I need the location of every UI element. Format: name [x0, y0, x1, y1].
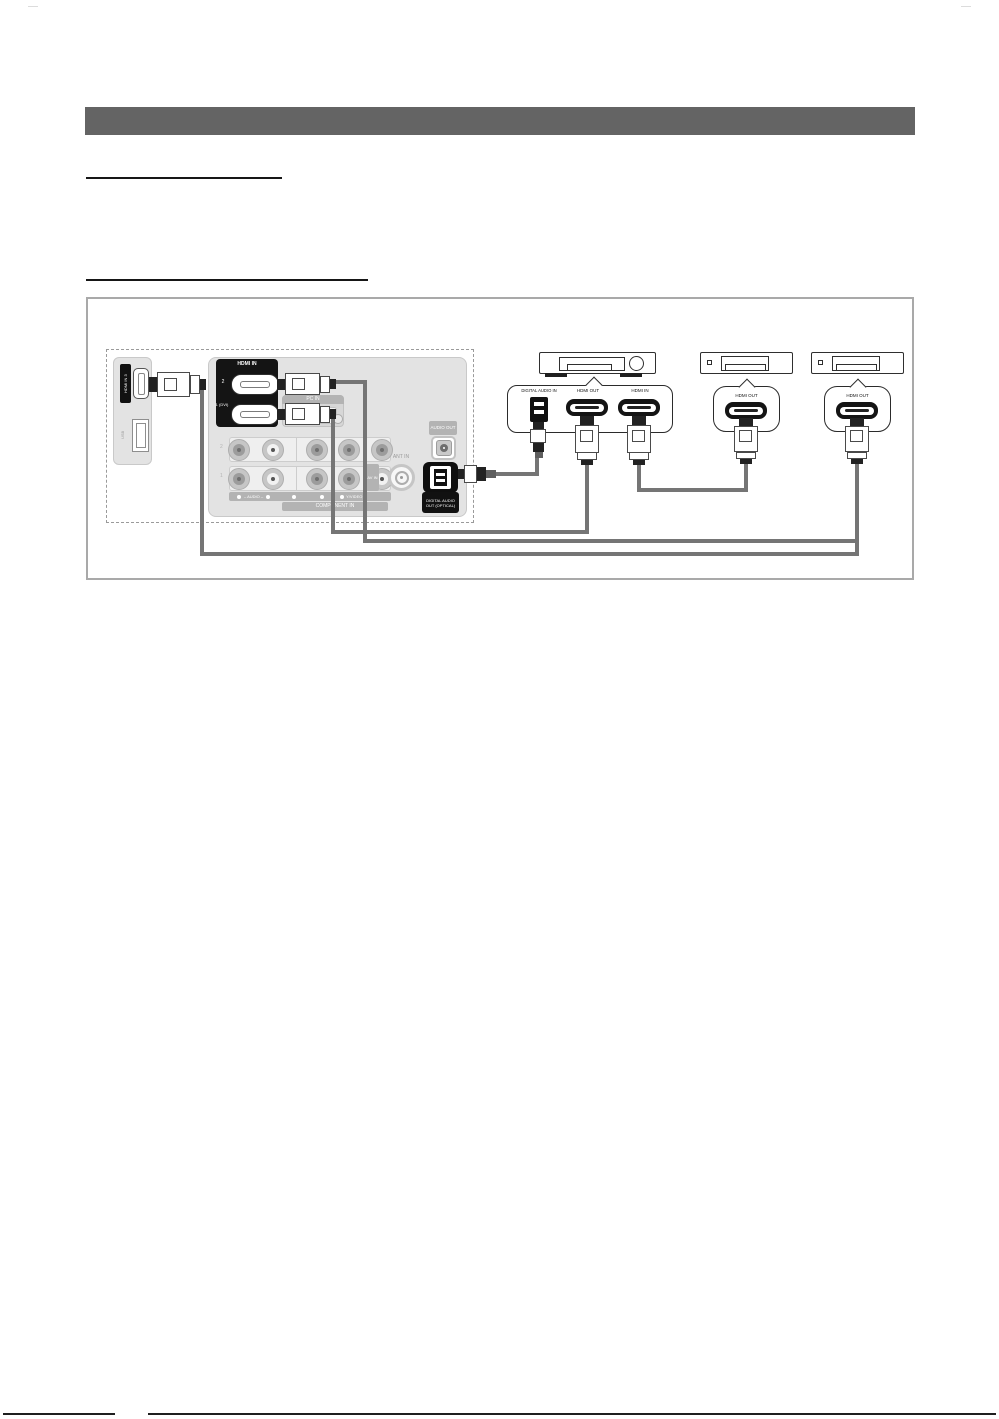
usb-port-label: USB — [117, 420, 128, 449]
pc-in-text: PC IN — [306, 396, 319, 402]
device3-connector-detail — [850, 430, 863, 442]
pb-icon — [292, 495, 296, 499]
optical-out-port — [423, 462, 458, 493]
hdmi-port-1-dvi — [231, 404, 279, 425]
hdmi3-connector-cap — [200, 379, 206, 390]
hdmi2-cable-vertical — [363, 380, 367, 543]
audio-out-label: AUDIO OUT — [429, 421, 457, 435]
rca-jack-pr-2 — [338, 439, 360, 461]
hdmi3-connector-detail — [164, 378, 177, 391]
hdmi1-connector-cap — [330, 409, 336, 419]
hdmi-port-1-slot — [240, 411, 270, 418]
ht-optical-connector-band — [533, 443, 544, 452]
hdmi3-label-text: HDMI IN 3 — [123, 374, 128, 393]
hdmi3-port — [133, 368, 149, 399]
ht-hdmi-out-label: HDMI OUT — [562, 388, 614, 393]
audio-out-text: AUDIO OUT — [430, 425, 455, 431]
audio-label: – AUDIO – — [244, 494, 263, 499]
tv-optical-connector-band — [477, 467, 486, 481]
ht-hdmi-in-connector-neck — [632, 416, 646, 425]
bottom-rule-right — [148, 1413, 996, 1415]
hdmi1-cable-horizontal — [331, 530, 589, 534]
ht-hdmi-in-connector-cap — [633, 460, 645, 465]
ant-in-port-pin — [400, 476, 403, 479]
home-theater-foot-left — [545, 373, 567, 377]
section-header-bar — [85, 107, 915, 135]
device3-button — [818, 360, 823, 365]
ht-hdmi-out-connector-detail — [580, 430, 593, 442]
device3-connector-cap — [851, 459, 863, 464]
heading-underline-1 — [86, 177, 282, 179]
ht-hdmi-in-label: HDMI IN — [614, 388, 666, 393]
ht-hdmi-out-connector-cap — [581, 460, 593, 465]
hdmi3-cable-horizontal — [200, 552, 859, 556]
audio-out-port — [431, 436, 456, 460]
hdmi-in-title: HDMI IN — [216, 361, 278, 367]
component-divider2 — [296, 437, 297, 462]
optical-out-label: DIGITAL AUDIO OUT (OPTICAL) — [422, 492, 459, 513]
tv-optical-connector-body — [464, 465, 477, 483]
ht-hdmi-in-connector-band — [629, 452, 649, 460]
device2-hdmi-out-label: HDMI OUT — [713, 393, 780, 398]
device2-connector-band — [736, 452, 756, 459]
digital-audio-in-label: DIGITAL AUDIO IN — [508, 388, 570, 393]
pr-icon — [320, 495, 324, 499]
av-in-text: AV IN — [367, 475, 377, 480]
rca-jack-audio-r-2 — [262, 439, 284, 461]
optical-glyph-icon — [434, 469, 447, 486]
component-row2-number: 2 — [220, 444, 228, 450]
rca-jack-pb-2 — [306, 439, 328, 461]
heading-underline-2 — [86, 279, 368, 281]
hdmi2-connector-cap — [330, 379, 336, 389]
ht-hdmi-out-connector-band — [577, 452, 597, 460]
hdmi3-port-label: HDMI IN 3 — [120, 364, 131, 403]
device2-button — [707, 360, 712, 365]
hdmi1-connector-band — [320, 406, 330, 423]
rca-jack-audio-r-1 — [262, 468, 284, 490]
component-row1-number: 1 — [220, 473, 228, 479]
hdmi1-cable-vertical — [331, 409, 335, 534]
ht-optical-connector-cap — [535, 452, 543, 458]
hdmi-port1-number: 1 (DVI) — [214, 403, 230, 408]
device2-connector-neck — [739, 418, 753, 426]
rca-jack-audio-l-2 — [228, 439, 250, 461]
usb-port — [132, 419, 149, 452]
device2-hdmi-out-port — [725, 402, 767, 419]
home-theater-knob — [629, 356, 644, 371]
optical-out-text: DIGITAL AUDIO OUT (OPTICAL) — [422, 498, 459, 508]
ant-in-label: ANT IN — [386, 454, 416, 460]
hdmi-port2-number: 2 — [216, 379, 230, 385]
rca-jack-audio-l-1 — [228, 468, 250, 490]
y-icon — [340, 495, 344, 499]
usb-label-text: USB — [120, 430, 125, 438]
device3-hdmi-out-port — [836, 402, 878, 419]
tv-optical-connector-cap — [486, 470, 496, 478]
hdmi2-connector-detail — [292, 378, 305, 390]
hdmi1-connector-detail — [292, 408, 305, 420]
hdmi3-port-slot — [138, 373, 145, 395]
av-in-tab: AV IN — [366, 464, 379, 491]
ht-hdmi-in-connector-detail — [632, 430, 645, 442]
device3-connector-neck — [850, 418, 864, 426]
rca-jack-pr-1 — [338, 468, 360, 490]
y-video-label: Y/VIDEO — [346, 494, 362, 499]
ht-hdmi-out-cable-vertical — [585, 464, 589, 534]
device2-tray-inner — [725, 364, 766, 371]
hdmi-port-2 — [231, 374, 279, 395]
hdmi2-connector-tip — [277, 379, 285, 390]
crop-mark-top-left — [28, 6, 38, 7]
audio-l-icon — [237, 495, 241, 499]
ant-in-port — [388, 464, 415, 491]
device3-connector-band — [847, 452, 867, 459]
ht-hdmi-in-port — [618, 399, 660, 416]
rca-jack-pb-1 — [306, 468, 328, 490]
manual-page: HDMI IN 3 USB HDMI IN 2 1 (DVI) PC IN 2 … — [0, 0, 999, 1419]
crop-mark-top-right — [961, 6, 971, 7]
usb-port-slot — [136, 423, 146, 448]
optical-out-port-inner — [430, 466, 451, 489]
hdmi2-connector-band — [320, 376, 330, 393]
device3-tray-inner — [836, 364, 877, 371]
hdmi3-connector-band — [190, 375, 200, 394]
home-theater-tray-inner — [567, 364, 612, 371]
bottom-rule-left — [3, 1413, 115, 1415]
device3-hdmi-out-label: HDMI OUT — [824, 393, 891, 398]
device2-connector-cap — [740, 459, 752, 464]
ant-in-port-inner — [395, 471, 409, 485]
component-divider1 — [296, 466, 297, 491]
hdmi3-cable-vertical — [200, 386, 204, 556]
optical-cable-horizontal — [495, 472, 539, 476]
ht-hdmi-out-connector-neck — [580, 416, 594, 425]
audio-out-port-pin — [440, 444, 448, 452]
audio-out-port-square — [436, 440, 452, 456]
ht-optical-connector-tip — [533, 422, 544, 429]
audio-r-icon — [266, 495, 270, 499]
ht-optical-in-port — [530, 397, 548, 422]
hdmi1-connector-tip — [277, 409, 285, 420]
hdmi2-cable-horizontal — [363, 539, 859, 543]
device2-connector-detail — [739, 430, 752, 442]
hdmi-port-2-slot — [240, 381, 270, 388]
hdmi3-connector-tip — [149, 377, 157, 392]
device2-cable-v — [744, 464, 748, 492]
ht-device2-cable-h — [637, 488, 748, 492]
home-theater-foot-right — [620, 373, 642, 377]
ht-optical-connector-body — [530, 429, 546, 443]
ht-hdmi-out-port — [566, 399, 608, 416]
component-in-bar: COMPONENT IN — [282, 502, 388, 511]
component-in-text: COMPONENT IN — [316, 503, 355, 509]
